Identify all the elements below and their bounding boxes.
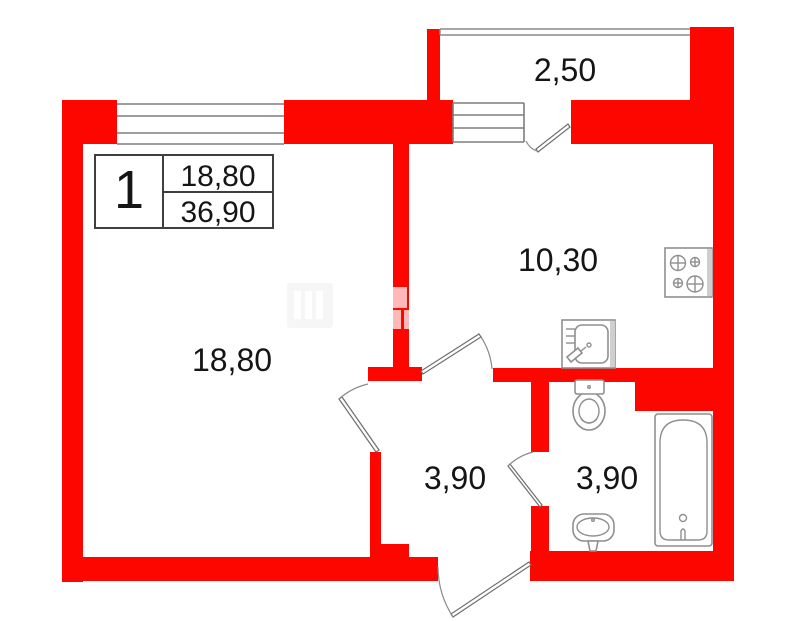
- total-area-value: 36,90: [180, 196, 255, 229]
- living-room-door: [339, 384, 379, 452]
- living-room-area-label: 18,80: [192, 342, 272, 378]
- bathroom-door: [508, 452, 542, 507]
- kitchen-door: [421, 334, 492, 374]
- wall-livingroom-kitchen-divider: [393, 144, 409, 367]
- wall-bottom-left: [62, 557, 438, 581]
- wall-balcony-left-pier: [427, 29, 440, 100]
- wall-balcony-right-corner: [690, 27, 734, 144]
- balcony-railing: [440, 29, 690, 35]
- wall-bathroom-left-upper: [531, 382, 549, 452]
- balcony-door: [526, 124, 570, 152]
- floor-plan-drawing: 1 18,80 36,90 2,50 10,30 18,80 3,90 3,90: [0, 0, 800, 622]
- bathtub-icon: [655, 414, 712, 546]
- entrance-door: [438, 562, 531, 617]
- wall-kitchen-bathroom-divider: [493, 368, 635, 382]
- watermark-text-row-2: [347, 310, 496, 329]
- toilet-icon: [573, 380, 605, 430]
- bath-sink-icon: [573, 514, 614, 551]
- living-area-value: 18,80: [180, 160, 255, 193]
- unit-info-table: 1 18,80 36,90: [95, 155, 273, 229]
- kitchen-window: [453, 103, 524, 142]
- wall-right: [713, 144, 734, 581]
- wall-hallway-top-bar: [368, 367, 422, 381]
- wall-bathtub-top-block: [635, 368, 713, 411]
- wall-top-left: [62, 100, 117, 144]
- kitchen-sink-icon: [562, 320, 615, 368]
- wall-top-middle: [284, 100, 453, 144]
- room-count-value: 1: [114, 160, 144, 220]
- hallway-area-label: 3,90: [424, 460, 486, 496]
- wall-left: [62, 100, 83, 582]
- floor-plan-canvas: 1 18,80 36,90 2,50 10,30 18,80 3,90 3,90: [0, 0, 800, 622]
- wall-bathroom-left-lower: [531, 506, 549, 551]
- wall-bottom-right: [530, 551, 734, 581]
- stove-icon: [665, 248, 712, 297]
- living-room-window: [117, 104, 284, 144]
- kitchen-area-label: 10,30: [518, 242, 598, 278]
- bathroom-area-label: 3,90: [576, 460, 638, 496]
- balcony-area-label: 2,50: [534, 52, 596, 88]
- watermark-text-row-1: [347, 287, 529, 308]
